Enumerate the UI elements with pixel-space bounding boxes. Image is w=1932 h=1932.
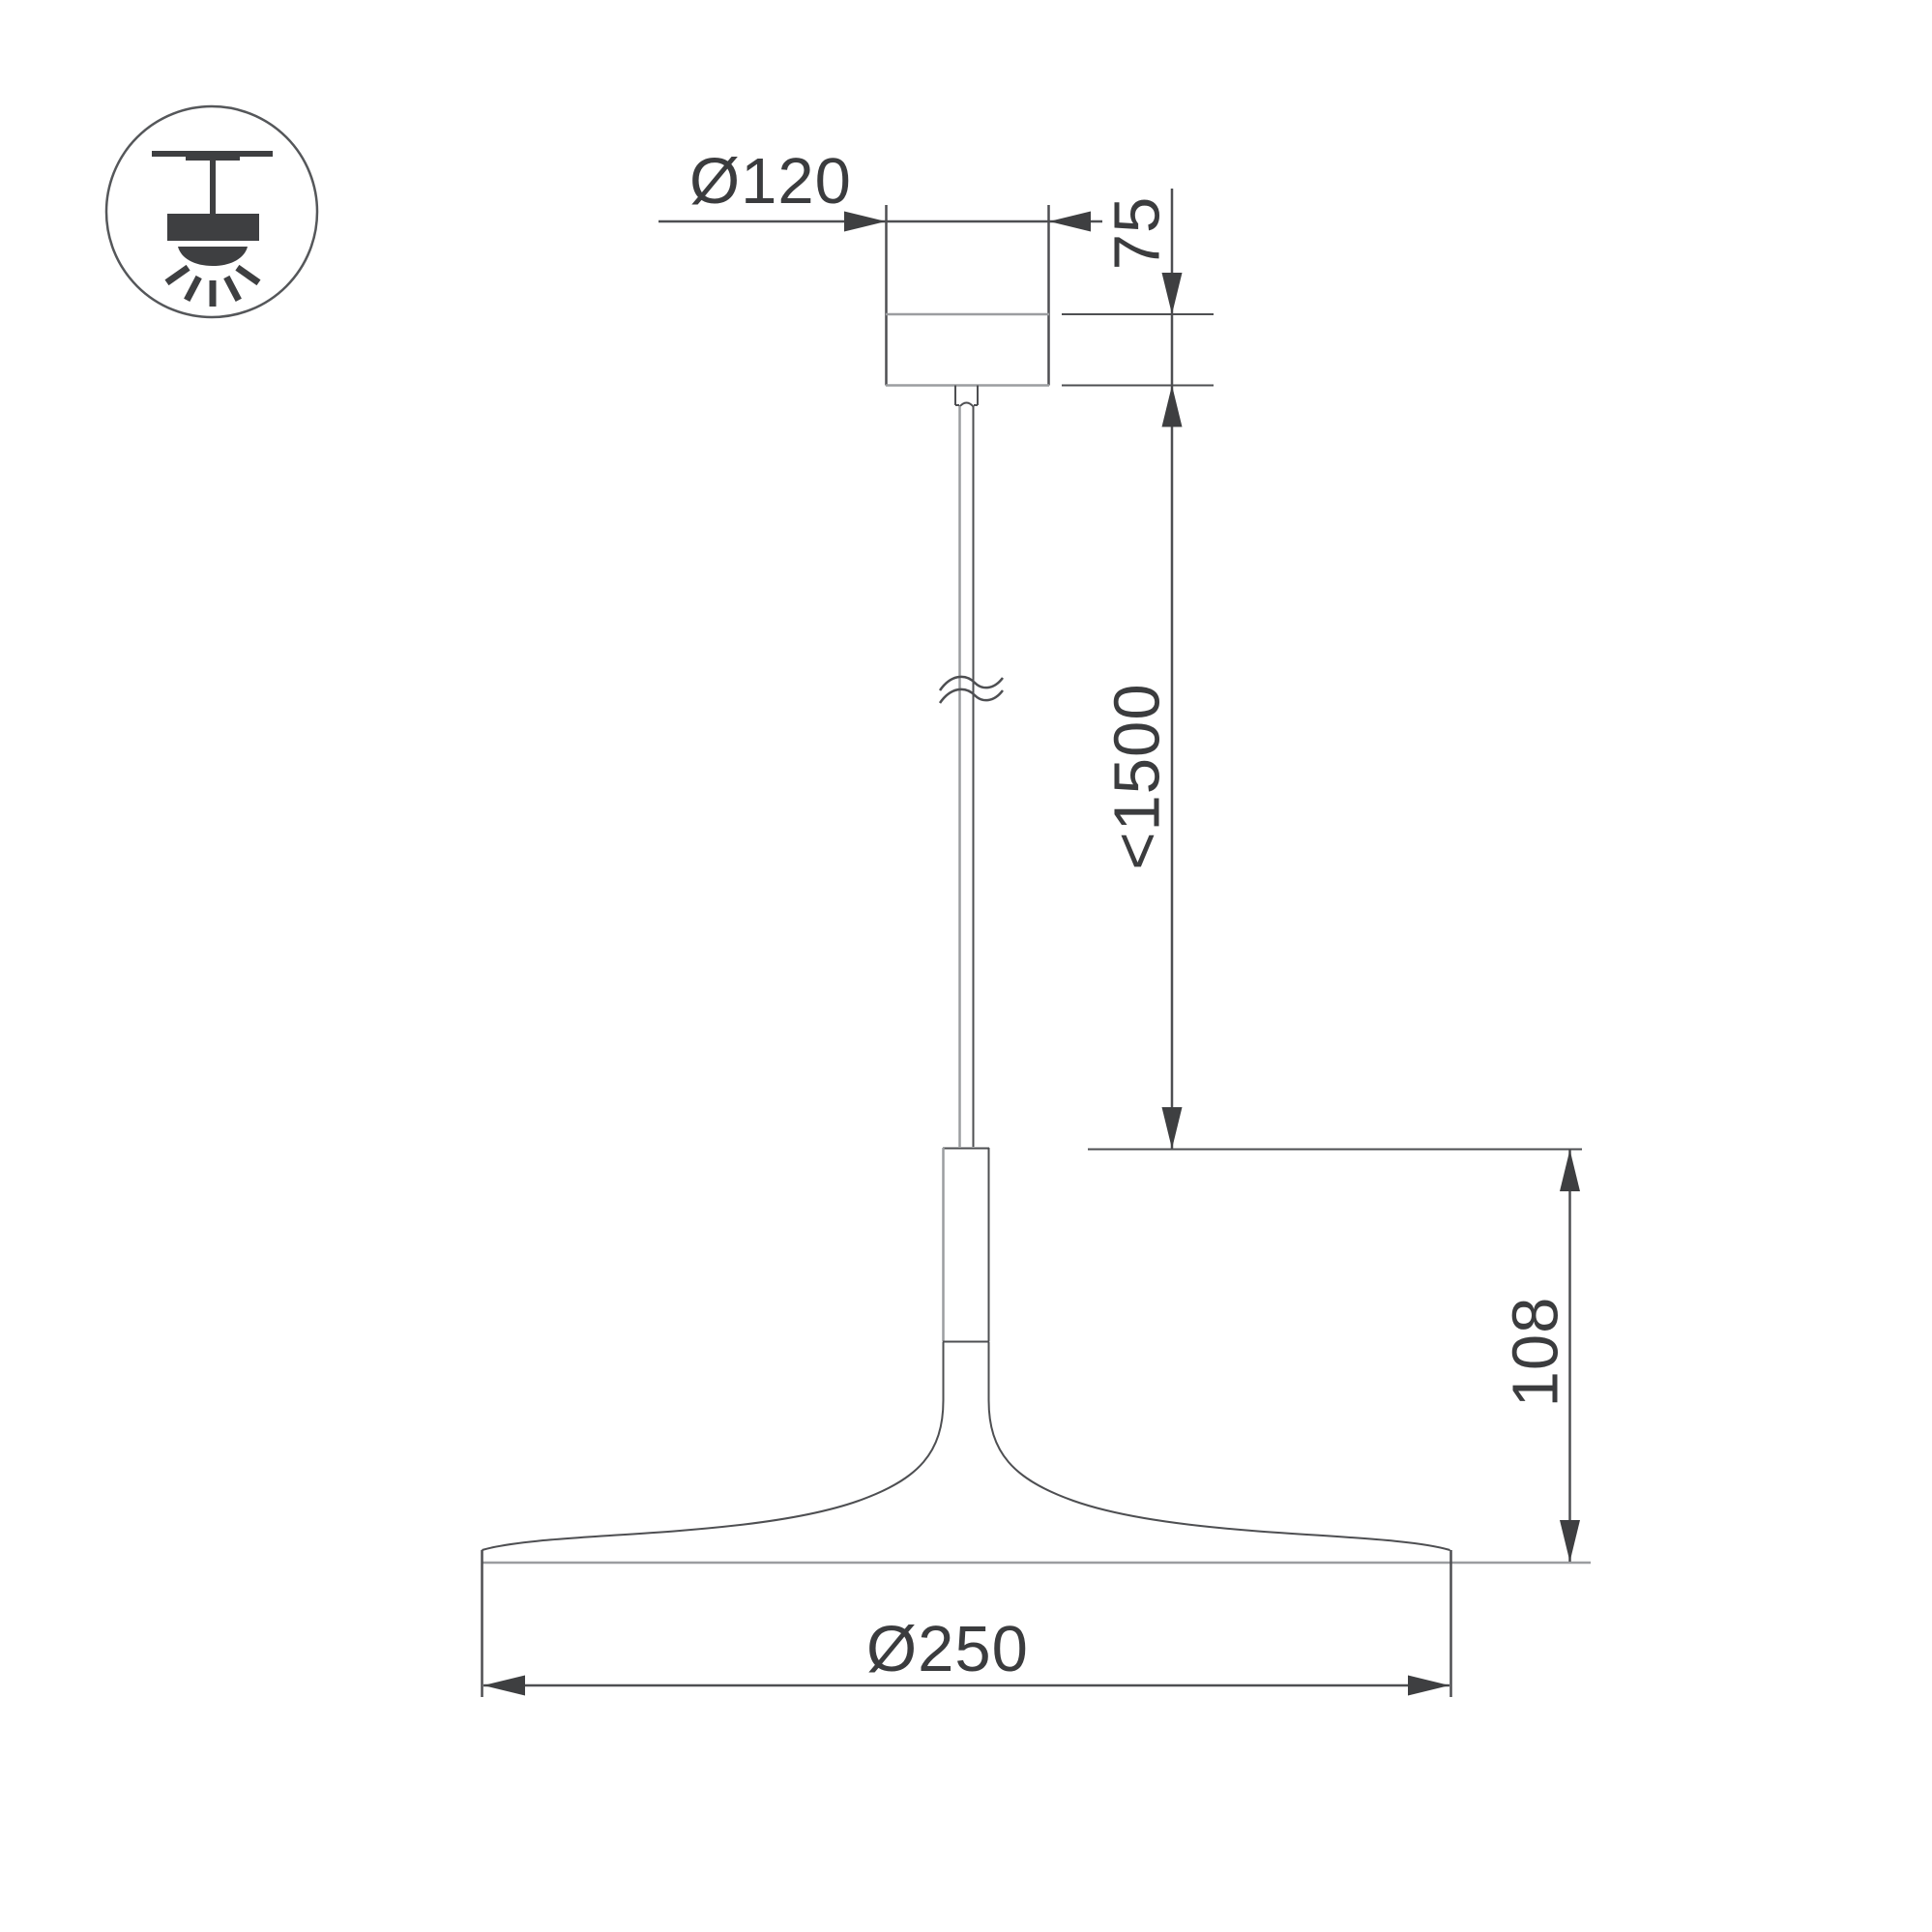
- arrowhead-right: [1408, 1676, 1449, 1696]
- dim-canopy-height: 75: [1062, 189, 1214, 1149]
- arrowhead-down: [1560, 1520, 1580, 1562]
- arrowhead-up: [1162, 386, 1183, 427]
- arrowhead-down: [1162, 273, 1183, 314]
- drawing-canvas: Ø120 75 <1500: [0, 0, 1932, 1932]
- shade-profile: [482, 1342, 1591, 1698]
- dim-canopy-diameter-label: Ø120: [689, 145, 852, 218]
- icon-lamp-body: [167, 214, 259, 241]
- cord-break-symbol: [940, 677, 1003, 703]
- suspension-cord: [940, 386, 1003, 1148]
- dim-shade-height-label: 108: [1500, 1297, 1572, 1408]
- arrowhead-left: [483, 1676, 525, 1696]
- arrowhead-down: [1162, 1107, 1183, 1149]
- icon-diffuser: [178, 247, 248, 266]
- arrowhead-right: [1049, 212, 1091, 232]
- lamp-stem: [943, 1148, 989, 1342]
- cord-gland-cap: [959, 403, 974, 408]
- dim-canopy-diameter: Ø120: [659, 145, 1102, 232]
- arrowhead-up: [1560, 1150, 1580, 1191]
- dim-shade-height: 108: [1500, 1150, 1581, 1562]
- canopy-outline: [886, 205, 1049, 386]
- ceiling-pendant-mount-icon: [106, 106, 317, 317]
- dimension-drawing: Ø120 75 <1500: [0, 0, 1932, 1932]
- dim-suspension-length-label: <1500: [1101, 683, 1174, 869]
- shade-curve-right: [989, 1342, 1450, 1551]
- dim-shade-diameter-label: Ø250: [866, 1613, 1029, 1685]
- light-rays-icon: [167, 268, 259, 307]
- dim-suspension-length: <1500: [1088, 683, 1582, 1149]
- shade-curve-left: [483, 1342, 944, 1551]
- dim-canopy-height-label: 75: [1101, 196, 1174, 271]
- icon-stem: [210, 157, 216, 216]
- dim-shade-diameter: Ø250: [483, 1613, 1449, 1696]
